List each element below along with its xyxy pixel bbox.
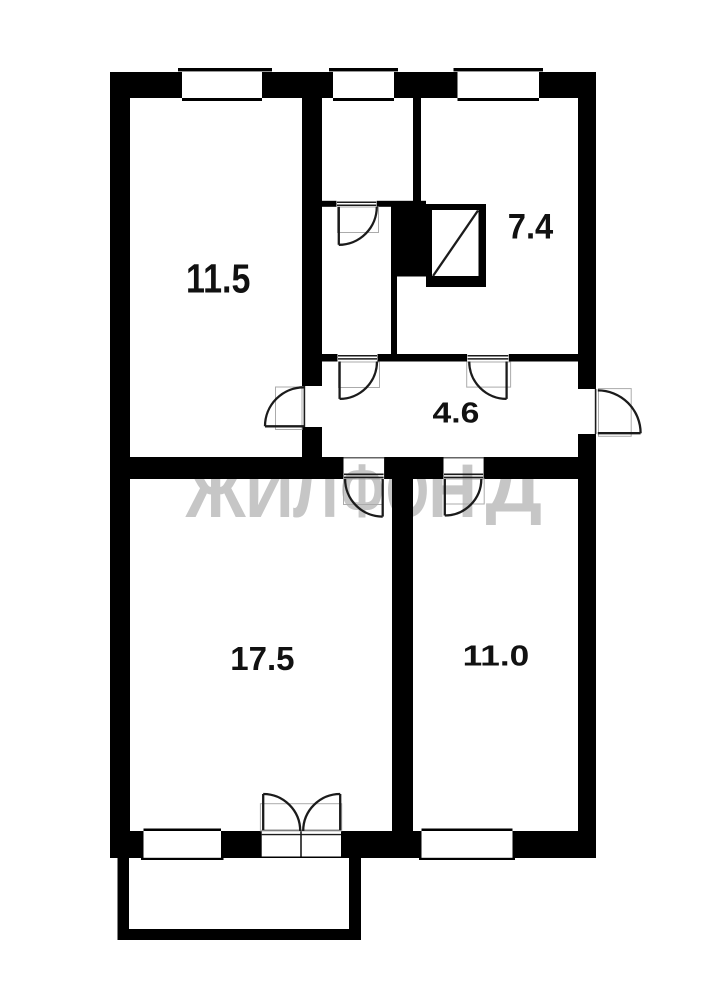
svg-text:7.4: 7.4: [508, 208, 554, 247]
svg-text:11.5: 11.5: [186, 255, 250, 301]
svg-text:17.5: 17.5: [230, 640, 294, 677]
svg-text:11.0: 11.0: [463, 639, 530, 671]
svg-text:4.6: 4.6: [433, 397, 480, 429]
